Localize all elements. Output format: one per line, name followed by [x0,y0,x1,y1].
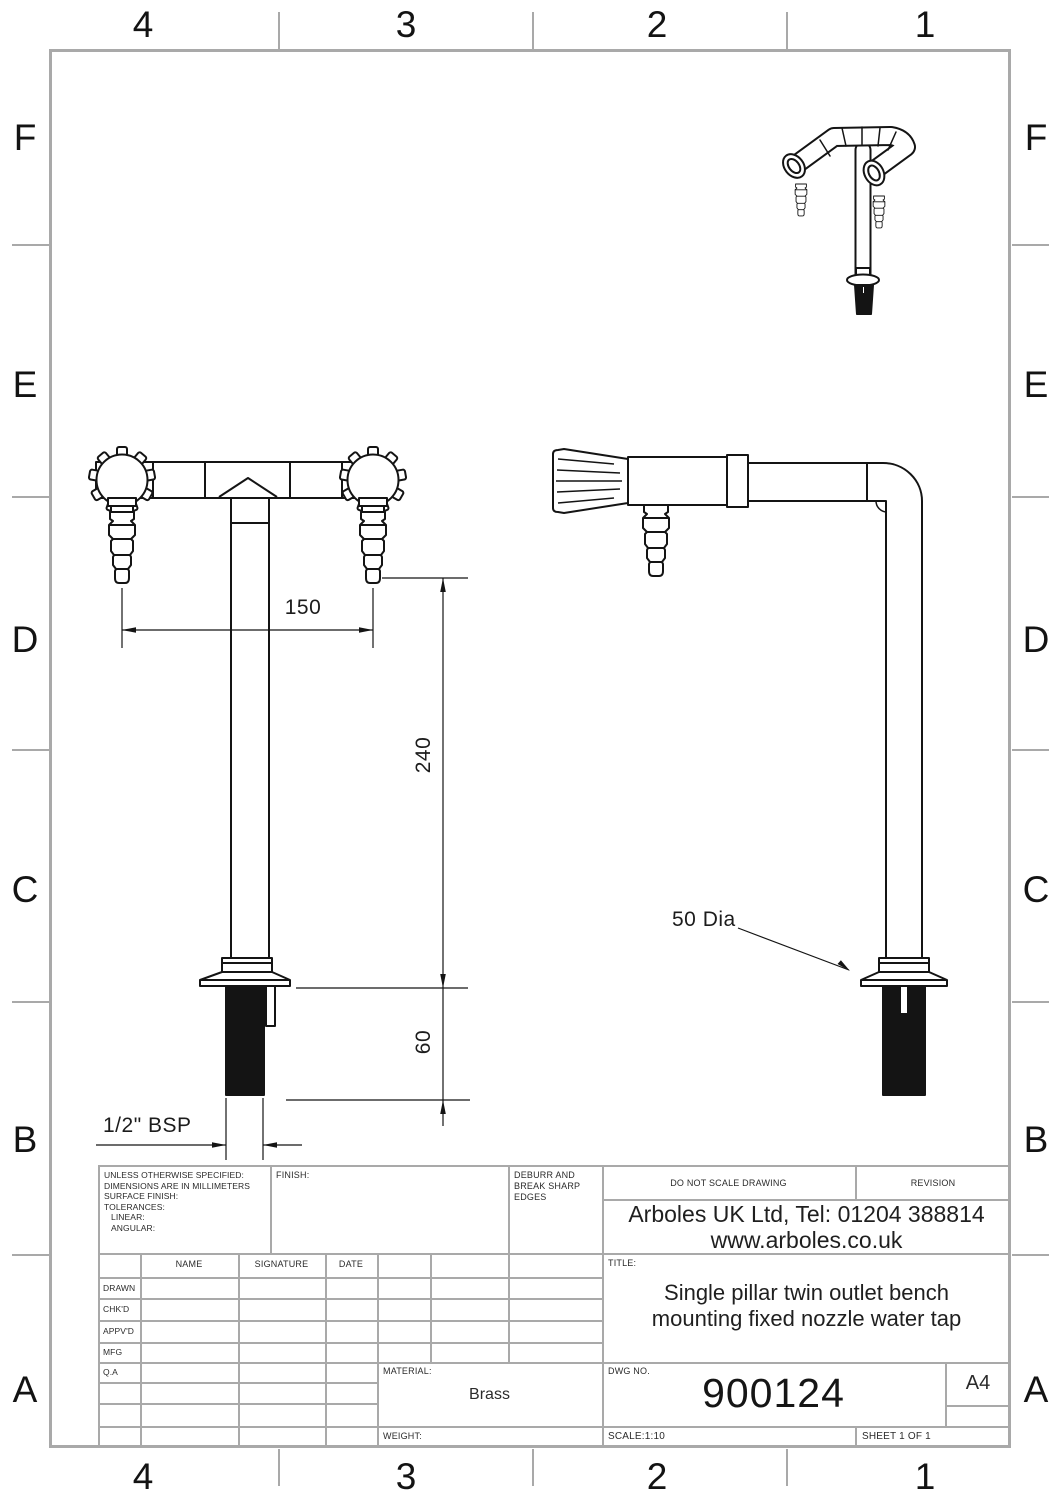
material-value: Brass [377,1386,602,1404]
tolerance-notes: UNLESS OTHERWISE SPECIFIED: DIMENSIONS A… [104,1170,268,1233]
weight-label: WEIGHT: [383,1431,422,1441]
dim-label-height: 240 [412,730,436,780]
titleblock-line [98,1277,602,1279]
titleblock-line [98,1426,1011,1428]
technical-drawing [0,0,1061,1500]
titleblock-line [98,1320,602,1322]
isometric-view [779,127,906,314]
note-line: DIMENSIONS ARE IN MILLIMETERS [104,1181,268,1192]
col-header-signature: SIGNATURE [238,1259,325,1269]
row-label-mfg: MFG [103,1347,122,1358]
dim-label-thread: 1/2" BSP [103,1114,192,1138]
note-line: ANGULAR: [104,1223,268,1234]
revision-label: REVISION [855,1178,1011,1188]
dimension-lines [96,578,849,1160]
note-line: UNLESS OTHERWISE SPECIFIED: [104,1170,268,1181]
dwg-number: 900124 [602,1370,945,1417]
dim-label-span: 150 [278,596,328,620]
company-website: www.arboles.co.uk [602,1227,1011,1253]
paper-size: A4 [945,1372,1011,1395]
side-view [553,449,947,1095]
col-header-name: NAME [140,1259,238,1269]
title-label: TITLE: [608,1258,636,1268]
company-info: Arboles UK Ltd, Tel: 01204 388814 www.ar… [602,1201,1011,1253]
dim-label-thread-length: 60 [412,1017,436,1067]
company-name-tel: Arboles UK Ltd, Tel: 01204 388814 [602,1201,1011,1227]
titleblock-line [238,1253,240,1448]
titleblock-line [270,1165,272,1253]
title-line: mounting fixed nozzle water tap [602,1306,1011,1332]
drawing-title: Single pillar twin outlet bench mounting… [602,1280,1011,1332]
note-line: TOLERANCES: [104,1202,268,1213]
titleblock-line [430,1253,432,1362]
do-not-scale-note: DO NOT SCALE DRAWING [602,1178,855,1188]
titleblock-line [855,1426,857,1448]
title-line: Single pillar twin outlet bench [602,1280,1011,1306]
titleblock-line [140,1253,142,1448]
note-line: LINEAR: [104,1212,268,1223]
titleblock-line [98,1362,1011,1364]
titleblock-line [98,1165,1011,1167]
titleblock-line [98,1253,1011,1255]
finish-label: FINISH: [276,1170,309,1180]
titleblock-line [377,1253,379,1448]
drawing-sheet: 4 3 2 1 4 3 2 1 F E D C B A F E D C B A [0,0,1061,1500]
titleblock-line [98,1165,100,1448]
titleblock-line [945,1405,1011,1407]
sheet-value: SHEET 1 OF 1 [862,1431,931,1442]
col-header-date: DATE [325,1259,377,1269]
front-view [89,447,407,1095]
row-label-chkd: CHK'D [103,1304,129,1315]
row-label-appvd: APPV'D [103,1326,134,1337]
row-label-qa: Q.A [103,1367,118,1378]
row-label-drawn: DRAWN [103,1283,135,1294]
deburr-note: DEBURR AND BREAK SHARP EDGES [514,1170,584,1203]
titleblock-line [98,1298,602,1300]
dim-label-base-dia: 50 Dia [672,908,736,932]
scale-value: SCALE:1:10 [608,1431,665,1442]
titleblock-line [98,1342,602,1344]
titleblock-line [325,1253,327,1448]
material-label: MATERIAL: [383,1366,432,1376]
note-line: SURFACE FINISH: [104,1191,268,1202]
titleblock-line [508,1165,510,1362]
